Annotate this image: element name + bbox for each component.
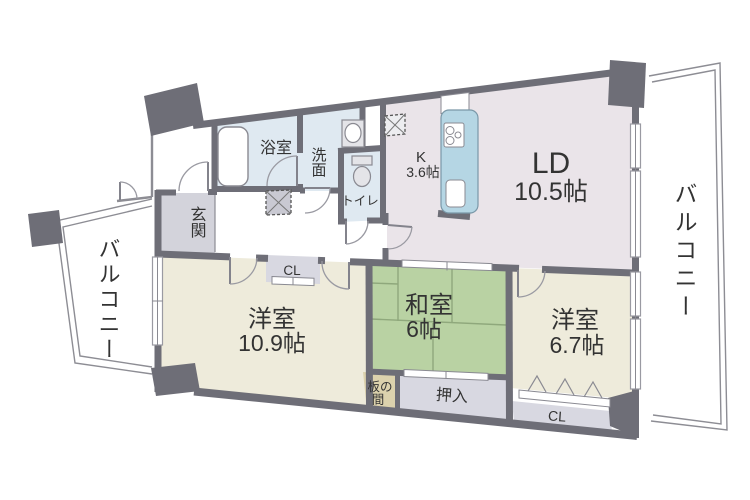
label-itanoma-1: 板の (367, 380, 392, 394)
kitchen-sink (446, 180, 465, 207)
label-toilet: トイレ (341, 194, 379, 208)
pillar-balcony-left (28, 210, 63, 247)
label-closet-hall: CL (283, 263, 301, 278)
label-genkan: 玄関 (188, 206, 207, 239)
pillar-top-right (608, 60, 646, 108)
label-living-name: LD (532, 147, 570, 180)
label-japanese-size: 6帖 (406, 316, 442, 342)
label-balcony-right: バルコニー (671, 182, 697, 322)
floorplan: 浴室 洗面 トイレ 玄関 K 3.6帖 LD 10.5帖 洋室 10.9帖 和室… (0, 0, 750, 500)
label-balcony-left: バルコニー (96, 238, 121, 363)
toilet-bowl (354, 167, 371, 187)
label-living-size: 10.5帖 (514, 178, 588, 206)
label-western1-name: 洋室 (248, 306, 296, 333)
label-itanoma-2: 間 (372, 393, 385, 407)
label-japanese-name: 和室 (405, 292, 453, 319)
pillar-bottom-left (151, 363, 200, 396)
toilet-tank (352, 156, 372, 165)
label-washroom: 洗面 (310, 147, 327, 177)
label-closet-west2: CL (548, 407, 567, 424)
label-kitchen-size: 3.6帖 (406, 164, 439, 180)
label-western2-name: 洋室 (551, 307, 599, 334)
label-oshiire: 押入 (435, 386, 468, 406)
label-western1-size: 10.9帖 (238, 330, 306, 356)
floorplan-page: 浴室 洗面 トイレ 玄関 K 3.6帖 LD 10.5帖 洋室 10.9帖 和室… (0, 0, 750, 500)
label-western2-size: 6.7帖 (550, 332, 605, 358)
bathtub (218, 127, 248, 186)
label-bath: 浴室 (260, 139, 292, 157)
